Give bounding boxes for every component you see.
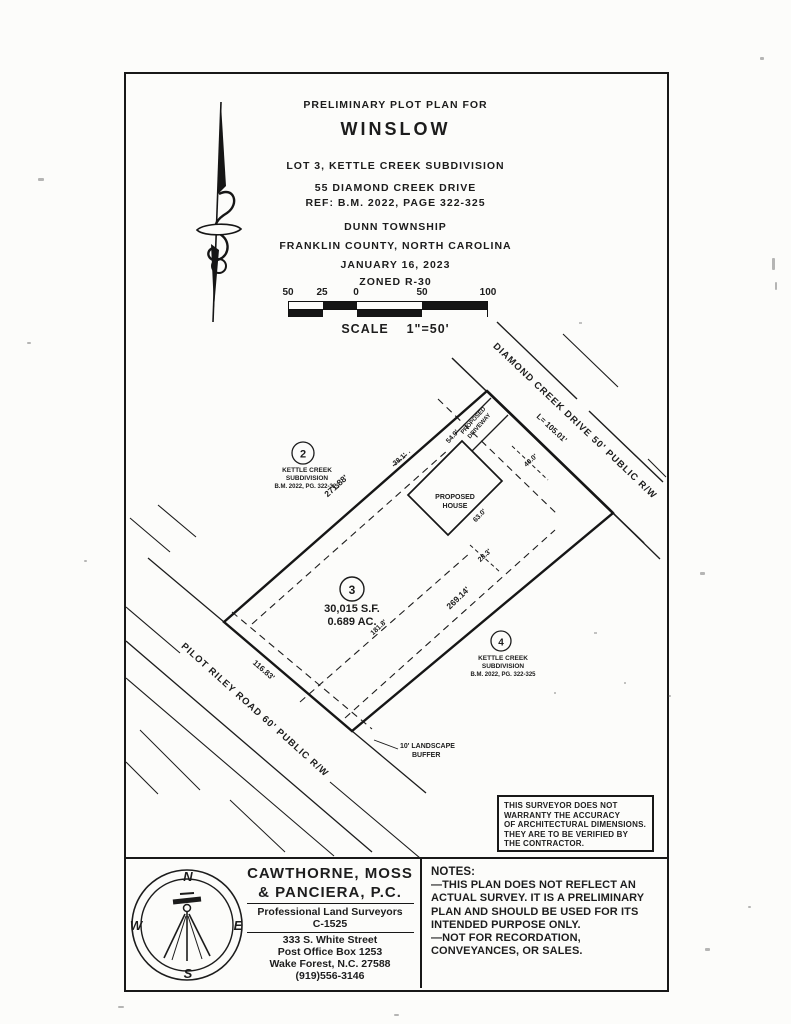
scan-speck — [700, 572, 705, 575]
plot-plan-drawing: DIAMOND CREEK DRIVE 50' PUBLIC R/W PILOT… — [124, 72, 667, 858]
firm-rule — [247, 903, 414, 904]
firm-po-box: Post Office Box 1253 — [243, 946, 417, 958]
scan-speck — [760, 57, 764, 60]
dim-se-boundary: 269.14' — [444, 585, 471, 612]
landscape-buffer-label: BUFFER — [412, 752, 440, 759]
proposed-house-label: PROPOSED — [435, 494, 475, 501]
disclaimer-line: OF ARCHITECTURAL DIMENSIONS. — [504, 820, 652, 830]
scan-speck — [772, 258, 775, 270]
scan-speck — [748, 906, 751, 908]
dim-house-c: 63.0' — [472, 508, 488, 524]
lot4-label: 4 KETTLE CREEK SUBDIVISION B.M. 2022, PG… — [470, 631, 536, 678]
north-arrow-ornament — [197, 102, 241, 322]
notes-body-2: —NOT FOR RECORDATION, CONVEYANCES, OR SA… — [431, 932, 657, 958]
svg-text:30,015 S.F.: 30,015 S.F. — [324, 603, 380, 615]
transit-instrument-icon — [164, 893, 210, 961]
firm-city: Wake Forest, N.C. 27588 — [243, 958, 417, 970]
disclaimer-line: THEY ARE TO BE VERIFIED BY — [504, 830, 652, 840]
scan-speck — [84, 560, 87, 562]
svg-text:KETTLE CREEK: KETTLE CREEK — [478, 655, 528, 662]
scan-speck — [27, 342, 31, 344]
dim-tie-b: 38.1' — [392, 452, 408, 467]
buffer-leader-line — [374, 740, 398, 749]
lot3-boundary — [224, 391, 613, 731]
svg-text:SUBDIVISION: SUBDIVISION — [286, 475, 329, 482]
surveyor-disclaimer-box: THIS SURVEYOR DOES NOT WARRANTY THE ACCU… — [497, 795, 654, 852]
notes-body-1: —THIS PLAN DOES NOT REFLECT AN ACTUAL SU… — [431, 879, 657, 932]
title-block-vertical-divider — [420, 857, 422, 988]
notes-block: NOTES: —THIS PLAN DOES NOT REFLECT AN AC… — [431, 866, 657, 958]
svg-text:B.M. 2022, PG. 322-325: B.M. 2022, PG. 322-325 — [274, 484, 340, 490]
lot2-label: 2 KETTLE CREEK SUBDIVISION B.M. 2022, PG… — [274, 442, 340, 490]
proposed-house-label: HOUSE — [443, 503, 468, 510]
svg-text:4: 4 — [498, 638, 504, 649]
scan-speck — [394, 1014, 399, 1016]
proposed-house — [408, 441, 502, 535]
disclaimer-line: THIS SURVEYOR DOES NOT — [504, 801, 652, 811]
compass-east: E — [234, 918, 243, 933]
scanned-plot-plan-page: PRELIMINARY PLOT PLAN FOR WINSLOW LOT 3,… — [0, 0, 791, 1024]
landscape-buffer-label: 10' LANDSCAPE — [400, 743, 455, 750]
lot3-label: 3 30,015 S.F. 0.689 AC. — [324, 577, 380, 628]
disclaimer-line: THE CONTRACTOR. — [504, 839, 652, 849]
pilot-riley-road — [126, 505, 426, 858]
dim-frontage-prr: 116.83' — [251, 658, 277, 682]
compass-west: W — [130, 918, 144, 933]
svg-text:2: 2 — [300, 449, 306, 461]
firm-profession: Professional Land Surveyors — [243, 906, 417, 918]
surveyor-compass-logo: N E S W — [128, 866, 246, 984]
scan-speck — [705, 948, 710, 951]
firm-street: 333 S. White Street — [243, 934, 417, 946]
svg-text:3: 3 — [349, 583, 356, 597]
compass-south: S — [184, 966, 193, 981]
firm-rule — [247, 932, 414, 933]
dim-tie-a: 28.3' — [477, 548, 493, 564]
firm-name-line1: CAWTHORNE, MOSS — [243, 865, 417, 882]
scan-speck — [775, 282, 777, 290]
scan-specks — [554, 322, 626, 694]
firm-license: C-1525 — [243, 918, 417, 930]
setback-lines — [232, 399, 558, 729]
scan-speck — [38, 178, 44, 181]
scan-speck — [668, 695, 671, 697]
firm-name-line2: & PANCIERA, P.C. — [243, 884, 417, 901]
notes-heading: NOTES: — [431, 866, 657, 879]
svg-text:B.M. 2022, PG. 322-325: B.M. 2022, PG. 322-325 — [470, 672, 536, 678]
svg-text:SUBDIVISION: SUBDIVISION — [482, 663, 525, 670]
svg-text:KETTLE CREEK: KETTLE CREEK — [282, 467, 332, 474]
dim-house-b: 40.0' — [523, 453, 539, 469]
svg-text:0.689 AC.: 0.689 AC. — [327, 616, 376, 628]
disclaimer-line: WARRANTY THE ACCURACY — [504, 811, 652, 821]
compass-north: N — [183, 869, 193, 884]
firm-phone: (919)556-3146 — [243, 970, 417, 982]
scan-speck — [118, 1006, 124, 1008]
title-block-divider — [124, 857, 667, 859]
